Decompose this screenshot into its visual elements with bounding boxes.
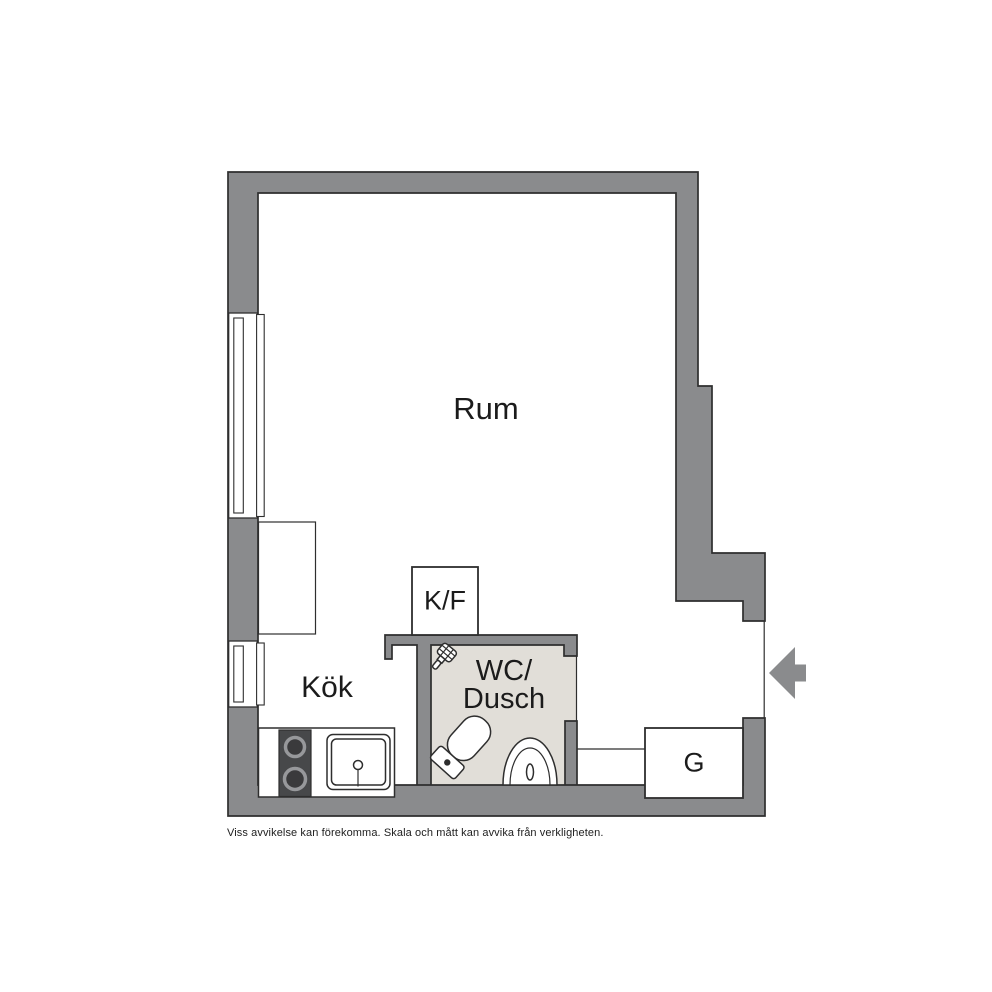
disclaimer-text: Viss avvikelse kan förekomma. Skala och … bbox=[227, 827, 603, 839]
room-label-rum: Rum bbox=[453, 391, 518, 427]
window-sill bbox=[257, 315, 265, 517]
window-sash bbox=[234, 646, 244, 702]
kitchen-sink-icon bbox=[327, 735, 390, 790]
room-label-kok: Kök bbox=[301, 671, 353, 705]
burner-icon bbox=[286, 738, 305, 757]
label-wardrobe: G bbox=[683, 748, 704, 779]
window-sill bbox=[257, 643, 265, 705]
window-sash bbox=[234, 318, 244, 513]
burner-icon bbox=[285, 769, 306, 790]
window-lower bbox=[229, 641, 265, 707]
floor-plan bbox=[0, 0, 992, 992]
entrance-arrow-icon bbox=[769, 647, 806, 699]
window-upper bbox=[229, 313, 265, 518]
bathroom-door-jamb bbox=[565, 721, 577, 786]
label-fridge-freezer: K/F bbox=[424, 586, 466, 617]
wc-label-line2: Dusch bbox=[463, 683, 545, 715]
room-label-wc-dusch: WC/ Dusch bbox=[463, 657, 545, 713]
cabinet-box bbox=[259, 522, 316, 634]
